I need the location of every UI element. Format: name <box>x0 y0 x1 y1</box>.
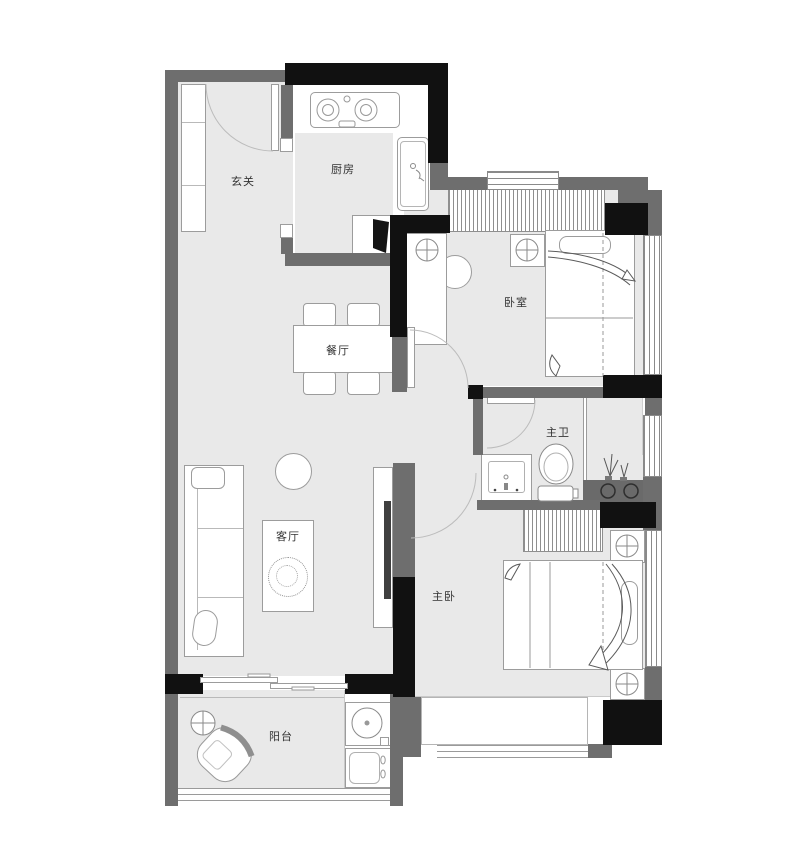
balcony-sliding-door-panel <box>200 677 278 683</box>
room-label-master-bath: 主卫 <box>546 424 570 440</box>
shower-bench <box>583 480 645 502</box>
laundry-sink-basin <box>349 752 380 784</box>
master-side-window <box>645 530 662 667</box>
bathroom-sink-basin <box>488 461 525 493</box>
dining-chair <box>303 371 336 395</box>
spine-wall-upper <box>392 337 407 392</box>
floor-plan: 玄关 厨房 餐厅 卧室 主卫 客厅 主卧 阳台 <box>0 0 800 865</box>
bath-top-wall <box>483 387 608 398</box>
kitchen-left-wall <box>281 85 293 138</box>
bedroom-top-corner <box>618 177 648 205</box>
spine-stub <box>404 215 450 233</box>
sofa-headrest <box>191 467 225 489</box>
bedroom-door-leaf <box>407 327 415 388</box>
master-nightstand <box>610 668 645 700</box>
right-wall-seg <box>645 397 662 415</box>
bay-left-jamb <box>403 697 421 757</box>
master-wardrobe <box>523 505 603 552</box>
dining-chair <box>347 371 380 395</box>
kitchen-door-jamb <box>280 224 293 238</box>
balcony-right-wall <box>390 690 403 806</box>
sofa-cushion-line <box>197 528 243 529</box>
bedroom-pillow <box>559 236 611 254</box>
stove <box>310 92 400 128</box>
dining-chair <box>303 303 336 327</box>
bath-left-wall <box>473 397 483 455</box>
room-label-living: 客厅 <box>276 528 300 544</box>
balcony-sliding-door-panel <box>270 683 348 689</box>
shoe-cabinet <box>181 84 206 232</box>
tv <box>384 501 391 599</box>
master-bay-window-glass <box>437 745 589 758</box>
shoe-cabinet-shelf-line <box>182 122 205 123</box>
bedroom-ne-column <box>605 203 648 235</box>
balcony-railing <box>178 788 395 805</box>
room-label-bedroom: 卧室 <box>504 294 528 310</box>
dining-chair <box>347 303 380 327</box>
fridge <box>352 215 392 257</box>
kitchen-top-wall <box>285 63 448 85</box>
master-pillow <box>621 581 638 645</box>
spine-column-upper <box>390 215 407 337</box>
master-se-column <box>603 700 662 745</box>
master-nightstand <box>610 530 645 563</box>
bedroom-bay-window <box>643 235 662 375</box>
room-label-kitchen: 厨房 <box>331 161 355 177</box>
bedroom-bath-divider <box>603 375 662 398</box>
balcony-threshold-line <box>180 697 344 698</box>
shower-glass-partition <box>583 397 587 480</box>
kitchen-right-column <box>428 85 448 163</box>
kitchen-sink-basin <box>400 141 426 207</box>
washing-machine-panel <box>380 737 389 746</box>
bedroom-nightstand <box>510 234 545 267</box>
balcony-door-column-left <box>165 674 203 694</box>
room-label-balcony: 阳台 <box>269 728 293 744</box>
kitchen-door-jamb <box>280 138 293 152</box>
shoe-cabinet-shelf-line <box>182 185 205 186</box>
bay-right-jamb <box>588 744 612 758</box>
kitchen-bottom-wall <box>285 253 393 266</box>
room-label-foyer: 玄关 <box>231 173 255 189</box>
bedroom-top-window <box>487 171 559 190</box>
left-exterior-wall <box>165 70 178 676</box>
bath-bottom-wall <box>477 500 600 510</box>
bath-se-column <box>600 502 656 528</box>
bedroom-door-jamb <box>468 385 483 399</box>
room-label-dining: 餐厅 <box>326 342 350 358</box>
bedroom-wardrobe <box>448 188 605 232</box>
round-stool <box>275 453 312 490</box>
spine-wall-mid <box>393 463 415 577</box>
coffee-table-plant-inner <box>276 565 298 587</box>
balcony-left-wall <box>165 694 178 806</box>
bath-window <box>643 415 662 477</box>
kitchen-left-wall-lower <box>281 238 293 254</box>
balcony-door-column-right <box>345 674 398 694</box>
entry-door-leaf <box>271 84 279 151</box>
master-bay-window <box>421 697 588 745</box>
sofa-cushion-line <box>197 597 243 598</box>
foyer-top-wall <box>165 70 293 82</box>
kitchen-right-wall-lower <box>430 163 448 190</box>
room-label-master-bedroom: 主卧 <box>432 588 456 604</box>
